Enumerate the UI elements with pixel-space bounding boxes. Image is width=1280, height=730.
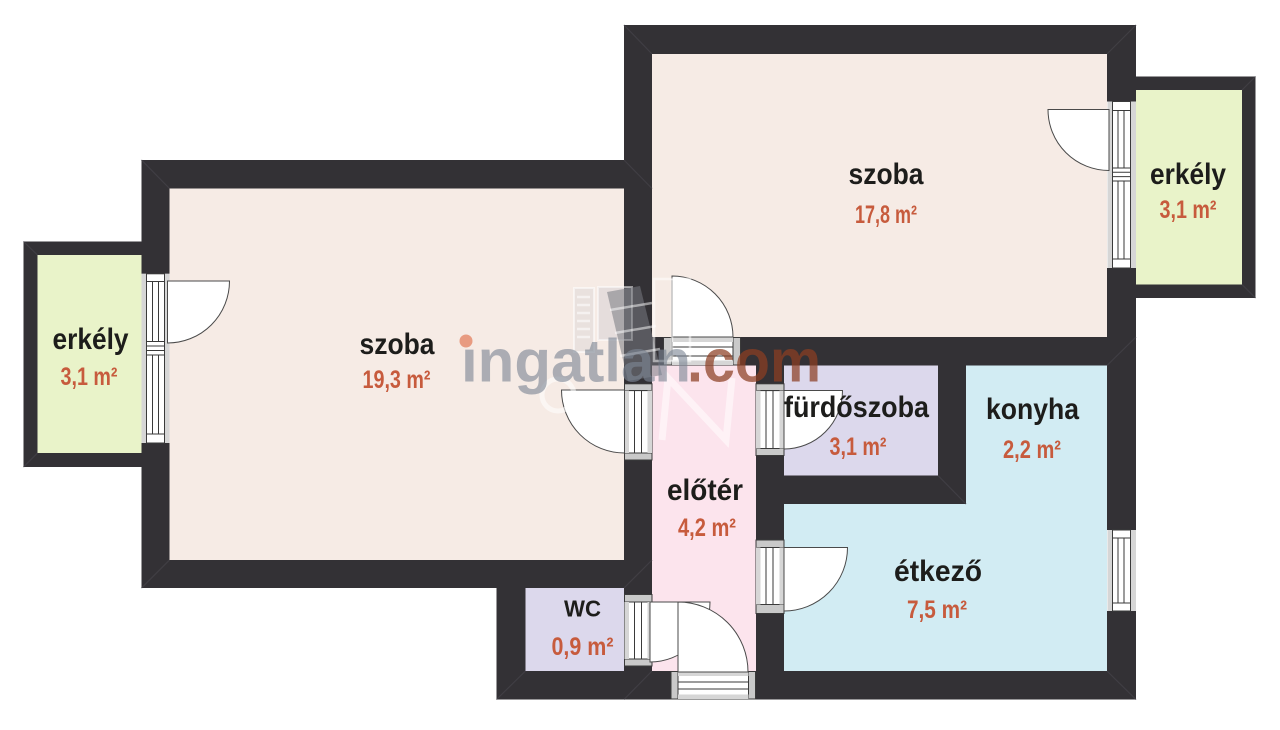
svg-text:erkély: erkély (53, 323, 130, 356)
svg-text:előtér: előtér (667, 474, 743, 507)
svg-text:7,5 m²: 7,5 m² (907, 596, 967, 624)
svg-text:17,8 m²: 17,8 m² (855, 201, 917, 229)
svg-text:19,3 m²: 19,3 m² (363, 366, 431, 394)
svg-text:2,2 m²: 2,2 m² (1003, 436, 1061, 464)
svg-text:3,1 m²: 3,1 m² (1160, 196, 1217, 224)
svg-text:WC: WC (564, 596, 601, 622)
svg-text:konyha: konyha (986, 393, 1080, 426)
svg-text:.com: .com (687, 328, 821, 395)
svg-text:szoba: szoba (849, 158, 925, 191)
svg-text:4,2 m²: 4,2 m² (678, 514, 736, 542)
svg-text:0,9 m²: 0,9 m² (552, 633, 614, 661)
svg-text:erkély: erkély (1150, 158, 1227, 191)
svg-text:étkező: étkező (894, 555, 982, 588)
svg-text:ıngatlan: ıngatlan (461, 328, 691, 395)
svg-text:fürdőszoba: fürdőszoba (784, 391, 930, 424)
svg-text:3,1 m²: 3,1 m² (61, 363, 118, 391)
svg-text:szoba: szoba (360, 328, 436, 361)
svg-text:3,1 m²: 3,1 m² (830, 433, 887, 461)
